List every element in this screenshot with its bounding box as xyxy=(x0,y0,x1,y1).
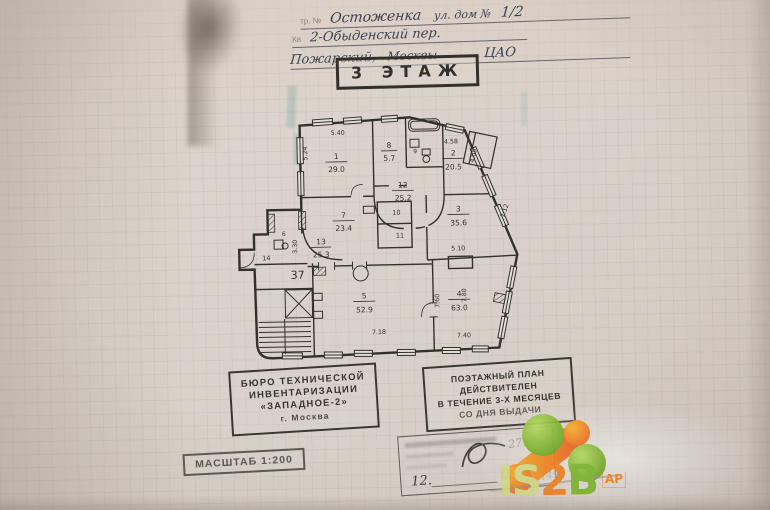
room-7-number: 7 xyxy=(341,211,346,220)
room-14-label: 14 xyxy=(262,254,270,262)
printed-apartment-label: Кв xyxy=(292,35,301,44)
room-6-label: 6 xyxy=(282,231,286,238)
stairwell xyxy=(258,289,313,354)
room-8-area: 5.7 xyxy=(383,154,395,163)
dim-7-18: 7.18 xyxy=(372,329,386,336)
room-5-area: 52.9 xyxy=(356,305,373,314)
printed-form-label: тр. № xyxy=(300,16,321,26)
room-3-area: 35.6 xyxy=(450,218,467,227)
door-swing-arcs xyxy=(239,183,434,321)
dim-5-10: 5.10 xyxy=(451,245,465,252)
room-2-number: 2 xyxy=(451,148,456,157)
apartment-37-label: 37 xyxy=(291,269,305,282)
door-jambs xyxy=(318,260,437,319)
room-12-area: 25.2 xyxy=(395,193,412,202)
room-1-area: 29.0 xyxy=(328,165,345,174)
illegible-text xyxy=(405,452,453,459)
dim-3-30: 3.30 xyxy=(292,240,299,254)
logo-orange-blob xyxy=(564,420,590,446)
dim-7-60: 7.60 xyxy=(434,294,441,308)
scanned-floor-plan-photo: 1 29.0 8 5.7 2 20.5 12 25.2 7 23.4 3 35.… xyxy=(0,0,770,510)
dim-4-58: 4.58 xyxy=(444,138,458,145)
dim-5-40: 5.40 xyxy=(331,130,345,137)
room-11-label: 11 xyxy=(396,231,404,239)
logo-green-sphere xyxy=(522,414,564,456)
okrug-handwritten: ЦАО xyxy=(484,45,517,61)
dim-7-40: 7.40 xyxy=(457,332,471,339)
room-13-area: 25.3 xyxy=(313,250,330,259)
logo-superscript: АР xyxy=(602,472,626,488)
room-1-number: 1 xyxy=(334,152,339,161)
handwritten-day: 12. xyxy=(411,473,433,489)
room-5-number: 5 xyxy=(362,291,367,300)
room-4-area: 63.0 xyxy=(451,303,468,312)
room-9-label: 9 xyxy=(413,148,417,155)
lane-name-handwritten: 2-Обыденский пер. xyxy=(309,26,441,46)
illegible-text xyxy=(406,463,446,470)
dim-7-12: 7.12 xyxy=(499,203,510,219)
dim-5-24: 5.24 xyxy=(302,146,309,160)
dim-7-80: 7.80 xyxy=(461,288,468,302)
room-12-number: 12 xyxy=(398,180,408,189)
room-10-label: 10 xyxy=(392,209,400,217)
room-7-area: 23.4 xyxy=(335,224,352,233)
room-8-number: 8 xyxy=(387,141,392,150)
photo-bottom-shadow xyxy=(0,496,770,510)
floor-number-stamp: 3 ЭТАЖ xyxy=(336,54,480,90)
photo-right-shadow xyxy=(746,0,770,510)
bti-bureau-stamp: БЮРО ТЕХНИЧЕСКОЙ ИНВЕНТАРИЗАЦИИ «ЗАПАДНО… xyxy=(228,363,380,437)
room-3-number: 3 xyxy=(456,204,461,213)
room-2-area: 20.5 xyxy=(445,162,462,171)
room-13-number: 13 xyxy=(316,237,326,246)
